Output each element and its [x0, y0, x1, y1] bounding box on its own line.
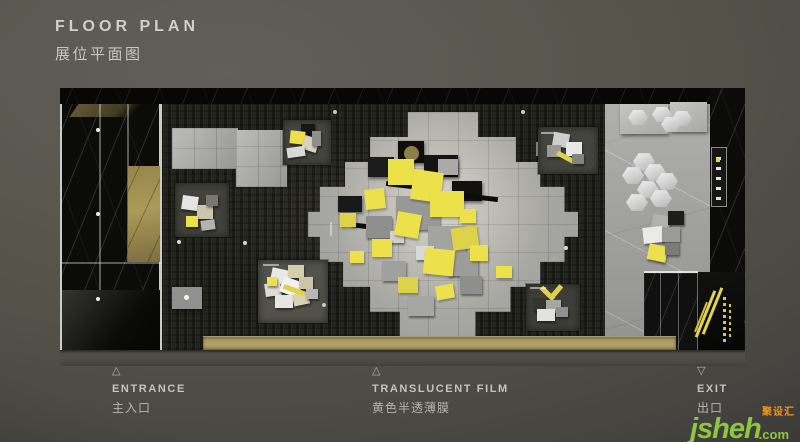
entrance-label-en: ENTRANCE	[112, 383, 186, 395]
exit-sign-text-dashes	[729, 301, 731, 337]
film-panel	[435, 284, 455, 301]
micro-label	[330, 222, 332, 236]
exit-label-en: EXIT	[697, 383, 728, 395]
film-panel	[364, 188, 386, 210]
film-panel	[460, 209, 476, 223]
film-marker-icon: △	[372, 365, 509, 377]
micro-label	[263, 264, 279, 266]
downlight	[184, 295, 189, 300]
display-cube	[572, 154, 584, 164]
display-cube	[267, 277, 277, 286]
film-panel	[372, 239, 392, 257]
entrance-marker-icon: △	[112, 365, 186, 377]
display-cube	[306, 289, 318, 299]
display-cube	[206, 195, 218, 206]
display-cube	[312, 131, 321, 146]
legend-entrance: △ ENTRANCE 主入口	[112, 365, 186, 416]
title-en: FLOOR PLAN	[55, 18, 199, 36]
entrance-label-zh: 主入口	[112, 399, 186, 416]
film-panel	[496, 266, 512, 278]
floor-plan-slide: FLOOR PLAN 展位平面图 △ ENTRANCE 主入口 △ TRANSL…	[0, 0, 800, 442]
display-cube	[408, 296, 434, 316]
downlight	[243, 241, 247, 245]
display-cube	[537, 309, 555, 321]
film-panel	[470, 245, 488, 261]
display-cube	[556, 307, 568, 317]
downlight	[333, 110, 337, 114]
downlight	[564, 246, 568, 250]
display-cube	[197, 205, 213, 219]
canopy-panel	[338, 196, 362, 212]
display-cube	[668, 211, 684, 225]
downlight	[521, 110, 525, 114]
hex-table	[628, 109, 648, 126]
display-cube	[460, 276, 482, 294]
display-cube	[662, 227, 680, 242]
downlight	[96, 297, 100, 301]
micro-label	[536, 142, 538, 156]
display-cube	[186, 216, 198, 227]
display-cube	[366, 216, 392, 238]
display-cube	[200, 219, 215, 231]
display-cube	[642, 226, 664, 244]
display-cube	[275, 295, 293, 308]
downlight	[96, 128, 100, 132]
watermark-name: jsheh	[690, 413, 761, 442]
watermark-badge: 聚设汇	[762, 403, 795, 418]
downlight	[177, 240, 181, 244]
display-cube	[299, 277, 313, 289]
film-panel	[388, 159, 414, 185]
watermark-tld: .com	[759, 427, 789, 442]
downlight	[322, 303, 326, 307]
display-cube	[665, 243, 679, 255]
exit-sign-text-dashes	[723, 296, 726, 342]
micro-label	[541, 132, 555, 134]
micro-label	[530, 287, 546, 289]
exit-marker-icon: ▽	[697, 365, 728, 377]
film-panel	[394, 211, 422, 239]
film-panel	[430, 191, 464, 217]
page-title: FLOOR PLAN 展位平面图	[55, 18, 199, 64]
title-zh: 展位平面图	[55, 43, 199, 64]
film-label-zh: 黄色半透薄膜	[372, 399, 509, 416]
film-panel	[423, 248, 456, 277]
legend-translucent-film: △ TRANSLUCENT FILM 黄色半透薄膜	[372, 365, 509, 416]
downlight	[96, 212, 100, 216]
film-panel	[398, 277, 418, 293]
film-label-en: TRANSLUCENT FILM	[372, 383, 509, 395]
watermark-jsheh[interactable]: jsheh 聚设汇 .com	[688, 400, 798, 442]
film-panel	[350, 251, 364, 263]
film-panel	[340, 213, 356, 227]
